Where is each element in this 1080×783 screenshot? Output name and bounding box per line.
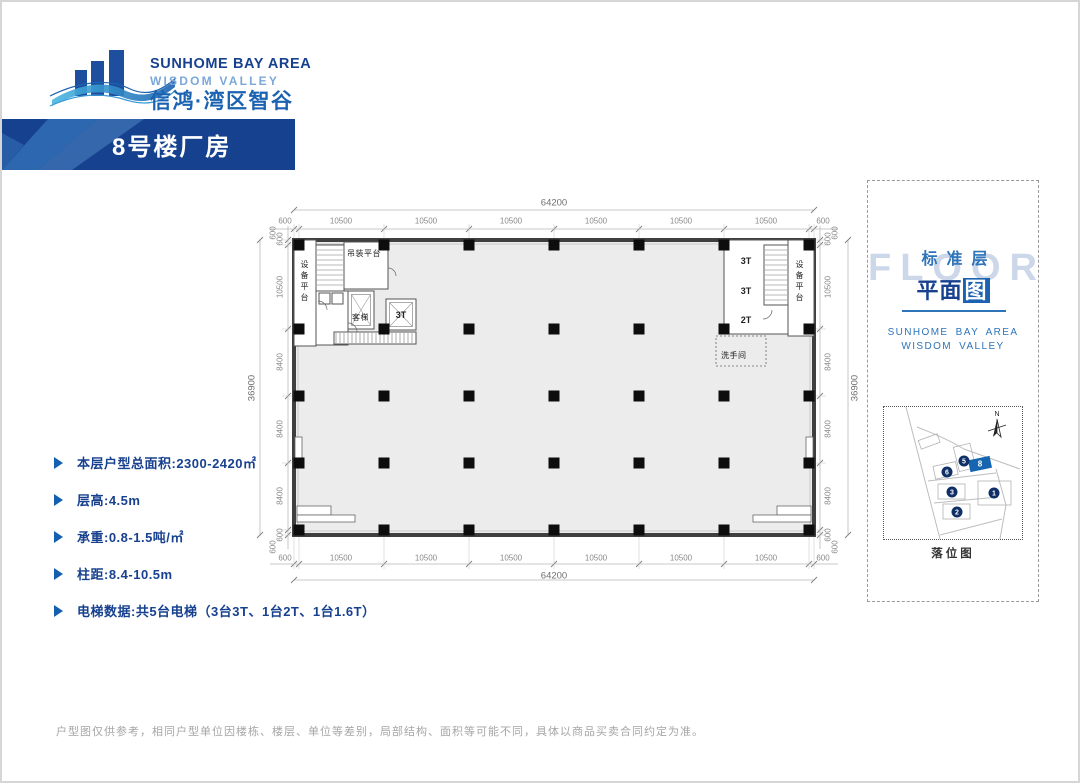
flyer-page: SUNHOME BAY AREA WISDOM VALLEY 信鸿·湾区智谷 8… [0, 0, 1080, 783]
dimension-label: 10500 [276, 276, 285, 298]
room-label-elevator-right-3: 2T [737, 315, 755, 325]
panel-brand-line1: SUNHOME BAY AREA [868, 327, 1038, 338]
north-label: N [994, 411, 999, 418]
dimension-label: 600 [816, 554, 829, 563]
dimension-label: 600 [278, 217, 291, 226]
dimension-label: 600 [831, 540, 840, 553]
dimension-label: 600 [816, 217, 829, 226]
spec-item-text: 柱距:8.4-10.5m [77, 564, 173, 583]
dimension-label: 8400 [824, 420, 833, 438]
dimension-label: 600 [269, 226, 278, 239]
dimension-label: 10500 [670, 554, 692, 563]
dimension-label: 8400 [824, 487, 833, 505]
bullet-triangle-icon [54, 568, 63, 580]
dimension-label: 600 [831, 226, 840, 239]
panel-title-plan-suffix: 图 [963, 278, 990, 303]
dimension-label: 8400 [824, 353, 833, 371]
bullet-triangle-icon [54, 605, 63, 617]
spec-item-4: 电梯数据:共5台电梯（3台3T、1台2T、1台1.6T） [54, 592, 376, 629]
specs-list: 本层户型总面积:2300-2420㎡层高:4.5m承重:0.8-1.5吨/㎡柱距… [54, 444, 376, 629]
spec-item-text: 电梯数据:共5台电梯（3台3T、1台2T、1台1.6T） [77, 601, 376, 620]
room-label-elevator-right-2: 3T [737, 286, 755, 296]
spec-item-0: 本层户型总面积:2300-2420㎡ [54, 444, 376, 481]
spec-item-text: 本层户型总面积:2300-2420㎡ [77, 453, 257, 472]
map-caption: 落位图 [868, 545, 1038, 561]
dimension-label: 8400 [276, 353, 285, 371]
dimension-label: 10500 [330, 217, 352, 226]
dimension-label: 10500 [585, 554, 607, 563]
panel-title-standard-floor: 标准层 [874, 245, 1044, 269]
spec-item-2: 承重:0.8-1.5吨/㎡ [54, 518, 376, 555]
dimension-label: 36900 [850, 375, 861, 401]
dimension-label: 10500 [670, 217, 692, 226]
room-label-hoisting-platform: 吊装平台 [347, 248, 381, 259]
map-building-label: 1 [992, 491, 996, 498]
side-panel: FLOOR 标准层 平面图 SUNHOME BAY AREA WISDOM VA… [867, 180, 1039, 602]
spec-item-text: 层高:4.5m [77, 490, 140, 509]
dimension-label: 10500 [755, 554, 777, 563]
map-building-label: 5 [962, 459, 966, 466]
spec-item-3: 柱距:8.4-10.5m [54, 555, 376, 592]
map-building-label: 3 [950, 490, 954, 497]
bullet-triangle-icon [54, 494, 63, 506]
site-location-map: N 856312 [883, 406, 1023, 540]
panel-title-plan: 平面图 [868, 273, 1038, 305]
map-building-label: 2 [955, 510, 959, 517]
bullet-triangle-icon [54, 457, 63, 469]
room-label-equipment-platform-right: 设备平台 [794, 260, 805, 304]
dimension-label: 36900 [247, 375, 258, 401]
panel-divider [902, 310, 1006, 312]
dimension-label: 8400 [276, 420, 285, 438]
dimension-label: 64200 [541, 571, 567, 582]
room-label-restroom: 洗手间 [721, 350, 747, 361]
dimension-label: 10500 [500, 554, 522, 563]
dimension-label: 10500 [824, 276, 833, 298]
dimension-label: 10500 [500, 217, 522, 226]
spec-item-1: 层高:4.5m [54, 481, 376, 518]
dimension-label: 10500 [415, 217, 437, 226]
spec-item-text: 承重:0.8-1.5吨/㎡ [77, 527, 184, 546]
room-label-elevator-3t-left: 3T [392, 310, 410, 320]
panel-brand-line2: WISDOM VALLEY [868, 341, 1038, 352]
disclaimer-text: 户型图仅供参考，相同户型单位因楼栋、楼层、单位等差别，局部结构、面积等可能不同，… [56, 723, 1016, 739]
dimension-label: 10500 [415, 554, 437, 563]
dimension-label: 64200 [541, 198, 567, 209]
room-label-passenger-elevator: 客梯 [352, 312, 369, 323]
room-label-equipment-platform-left: 设备平台 [299, 260, 310, 304]
panel-title-plan-prefix: 平面 [916, 278, 962, 303]
map-building-label: 8 [978, 460, 983, 469]
dimension-label: 10500 [755, 217, 777, 226]
map-building-label: 6 [945, 470, 949, 477]
dimension-label: 10500 [585, 217, 607, 226]
site-map-drawing: N 856312 [884, 407, 1022, 539]
bullet-triangle-icon [54, 531, 63, 543]
room-label-elevator-right-1: 3T [737, 256, 755, 266]
